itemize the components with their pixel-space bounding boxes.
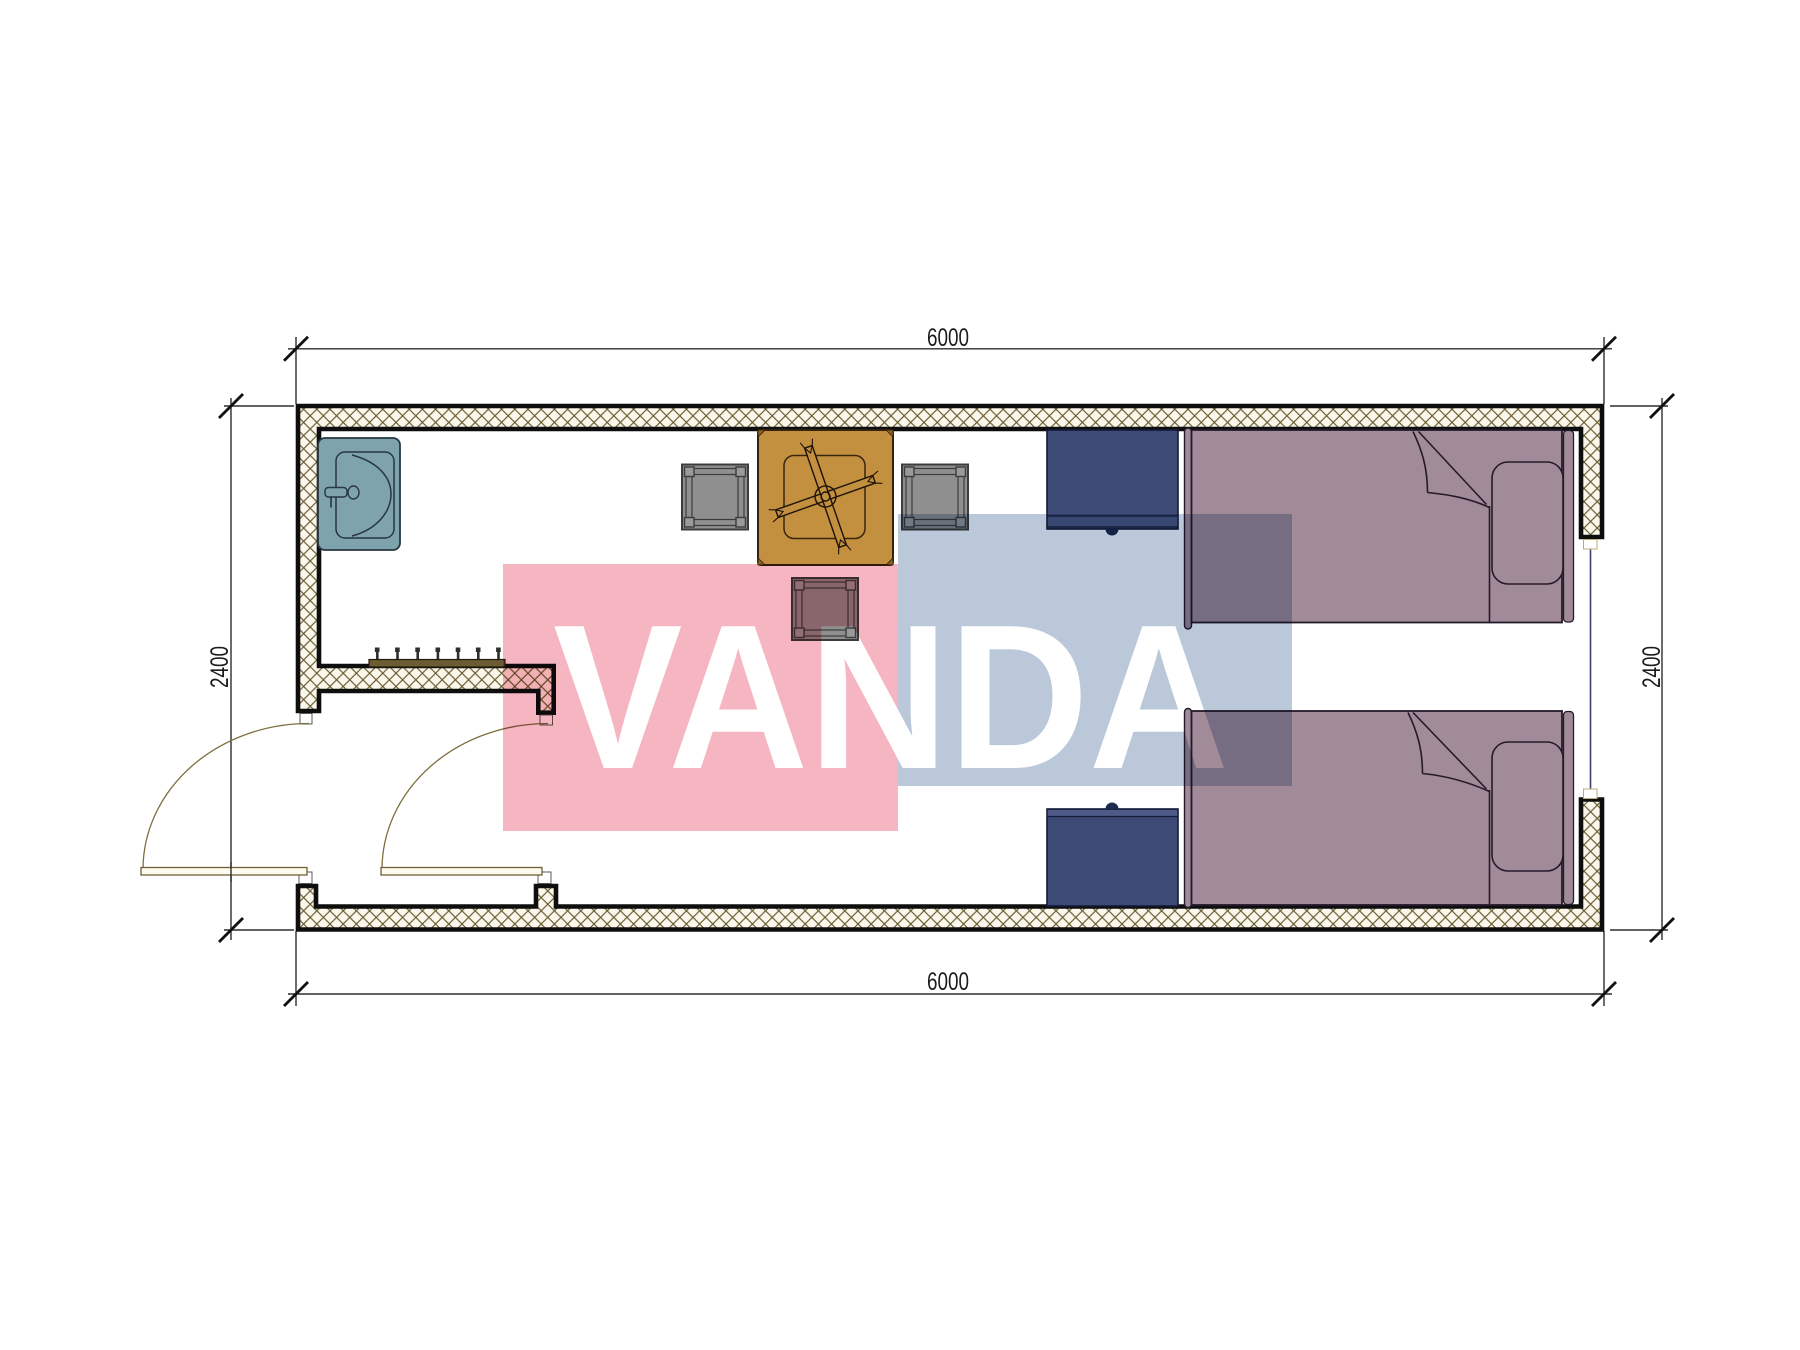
svg-text:2400: 2400 xyxy=(1638,646,1666,688)
svg-text:2400: 2400 xyxy=(206,646,234,688)
svg-text:6000: 6000 xyxy=(927,968,969,996)
svg-text:VANDA: VANDA xyxy=(553,582,1229,812)
svg-text:6000: 6000 xyxy=(927,324,969,352)
